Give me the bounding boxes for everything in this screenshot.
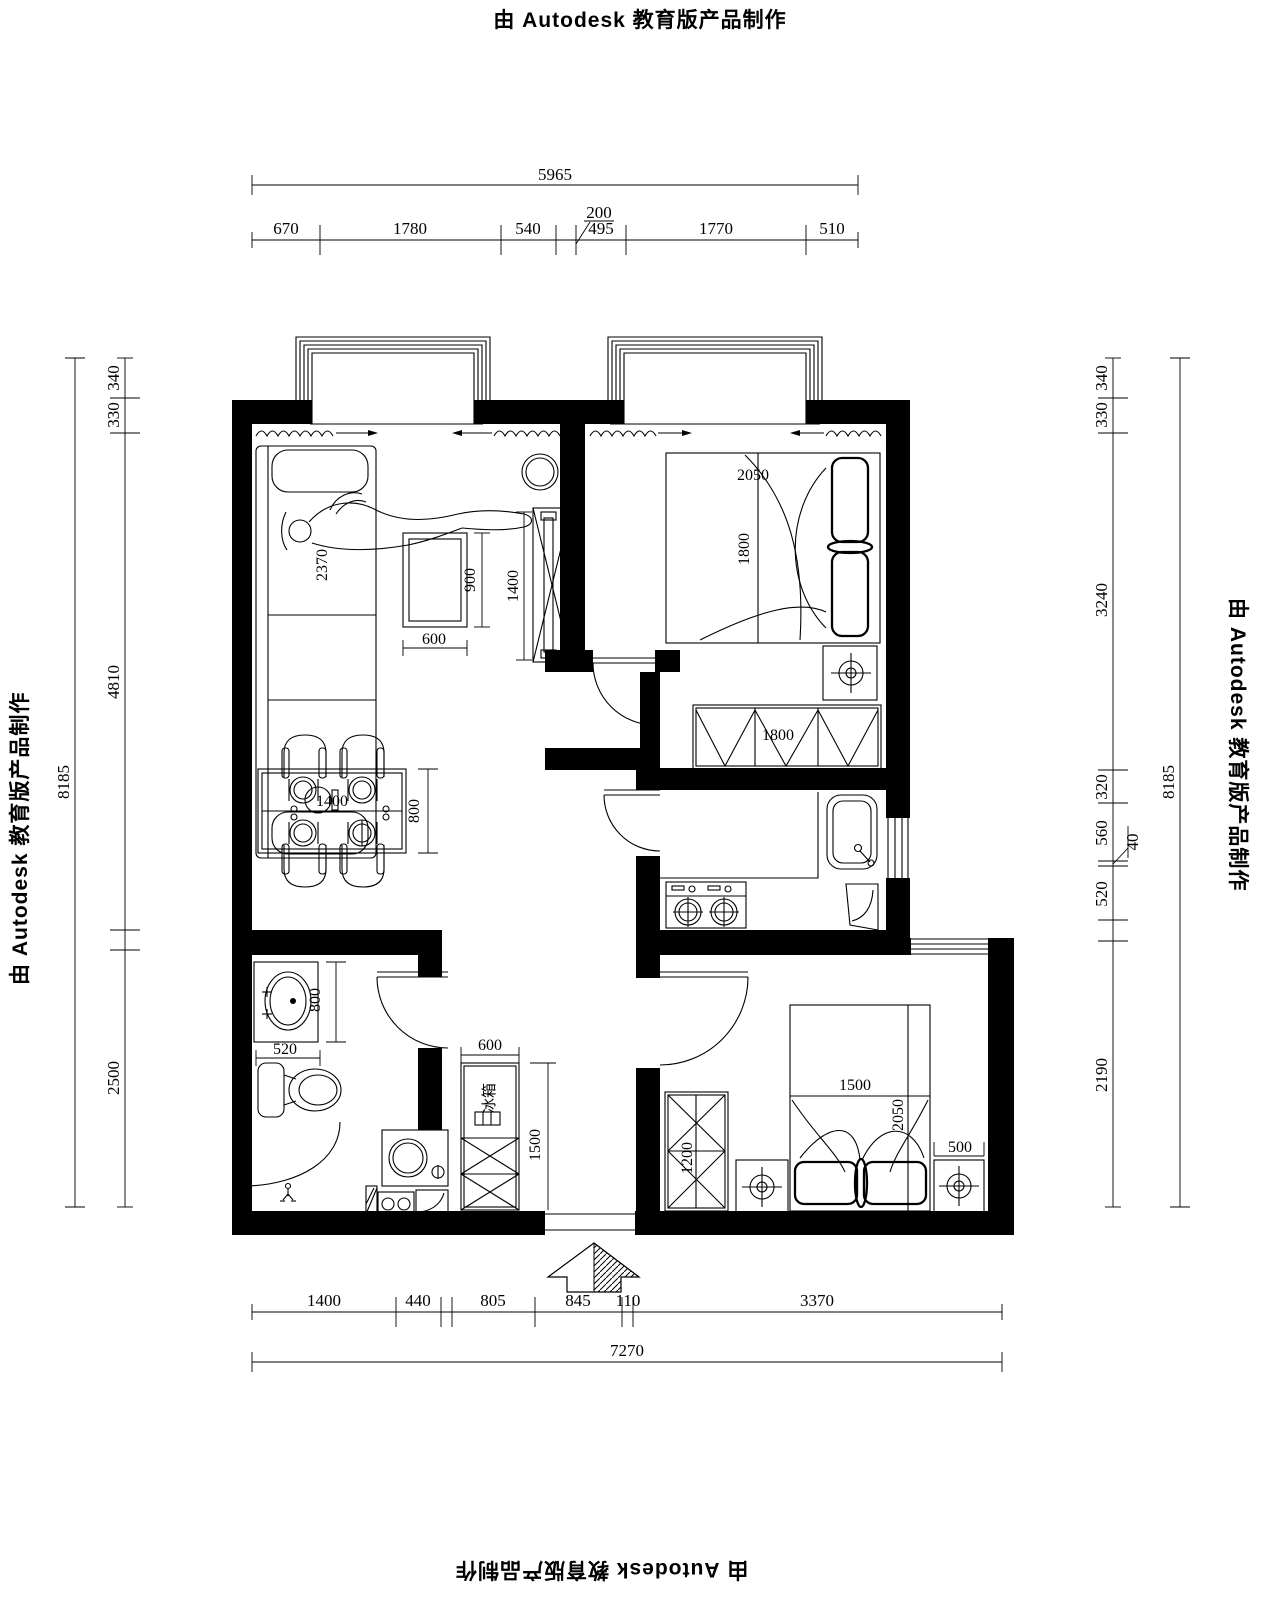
dim-fridge-width: 600 — [478, 1037, 502, 1054]
window-bedroom2-north — [911, 939, 988, 954]
curtain-living-room — [256, 430, 560, 436]
person-figure — [282, 493, 532, 550]
bed-bedroom2 — [790, 1005, 930, 1211]
dim-bed2-width: 1500 — [839, 1077, 871, 1094]
dim-basin-width: 520 — [273, 1041, 297, 1058]
dim-right-s1: 330 — [1092, 402, 1111, 428]
dim-left-s2: 4810 — [104, 665, 123, 699]
dim-bed1-length: 1800 — [736, 533, 753, 565]
dim-right-s3: 320 — [1092, 774, 1111, 800]
dim-bed1-width: 2050 — [737, 467, 769, 484]
dim-right-leader: 40 — [1123, 834, 1142, 851]
bed-bedroom1 — [666, 453, 880, 643]
coffee-table — [403, 533, 467, 627]
ceiling-lamp-icon — [522, 454, 558, 490]
dim-left-s1: 330 — [104, 402, 123, 428]
window-kitchen-east — [886, 818, 910, 878]
dim-bed2-length: 2050 — [890, 1099, 907, 1131]
dim-left-s3: 2500 — [104, 1061, 123, 1095]
dim-top-s1: 1780 — [393, 219, 427, 238]
dim-nightstand: 500 — [948, 1139, 972, 1156]
interior-dimensions: 2370 600 900 1400 1400 800 2050 1800 180… — [256, 467, 984, 1210]
toilet — [258, 1063, 341, 1117]
entry-arrow-icon — [548, 1243, 639, 1292]
dim-dining-length: 1400 — [316, 793, 348, 810]
door-bathroom — [377, 972, 448, 1048]
kitchen-counter — [660, 792, 818, 878]
washing-machine — [382, 1130, 448, 1186]
door-kitchen — [604, 790, 660, 851]
dim-top-s0: 670 — [273, 219, 299, 238]
fridge-label: 冰箱 — [481, 1083, 498, 1113]
cutting-board — [846, 884, 878, 930]
dim-chain-top: 5965 670 1780 540 495 1770 510 200 — [252, 165, 858, 255]
dim-right-total: 8185 — [1159, 765, 1178, 799]
dim-top-total: 5965 — [538, 165, 572, 184]
floor-plan-page: 由 Autodesk 教育版产品制作 由 Autodesk 教育版产品制作 由 … — [0, 0, 1280, 1600]
nightstand-bedroom1 — [823, 646, 877, 700]
dim-chain-bottom: 1400 440 805 845 110 3370 7270 — [252, 1291, 1002, 1372]
door-bedroom2 — [660, 972, 748, 1065]
dim-wardrobe2: 1200 — [679, 1142, 696, 1174]
dim-sofa: 2370 — [314, 549, 331, 581]
dim-right-s6: 2190 — [1092, 1058, 1111, 1092]
dim-right-s4: 560 — [1092, 820, 1111, 846]
fridge-cabinet: 冰箱 — [461, 1063, 519, 1210]
floor-drain-icon — [280, 1184, 296, 1202]
dim-fridge-height: 1500 — [527, 1129, 544, 1161]
stove — [666, 882, 746, 928]
dim-wardrobe1: 1800 — [762, 727, 794, 744]
dim-left-total: 8185 — [54, 765, 73, 799]
dim-top-s2: 540 — [515, 219, 541, 238]
dim-bottom-s2: 805 — [480, 1291, 506, 1310]
dim-right-s2: 3240 — [1092, 583, 1111, 617]
entry-threshold — [545, 1214, 635, 1230]
dim-coffee-table-depth: 900 — [462, 568, 479, 592]
dim-right-s5: 520 — [1092, 881, 1111, 907]
dim-basin-depth: 800 — [307, 988, 324, 1012]
dim-bottom-s1: 440 — [405, 1291, 431, 1310]
dim-bottom-s4: 110 — [616, 1291, 641, 1310]
bay-window-bedroom1 — [608, 337, 822, 424]
nightstand-left-bedroom2 — [736, 1160, 788, 1214]
dim-top-leader: 200 — [586, 203, 612, 222]
dim-top-s5: 510 — [819, 219, 845, 238]
wardrobe-bedroom2 — [665, 1092, 728, 1211]
dim-bottom-s5: 3370 — [800, 1291, 834, 1310]
floor-plan-drawing: 冰箱 — [0, 0, 1280, 1600]
dim-bottom-s0: 1400 — [307, 1291, 341, 1310]
dim-chain-left: 8185 340 330 4810 2500 — [54, 358, 140, 1207]
dim-bottom-s3: 845 — [565, 1291, 591, 1310]
dim-top-s4: 1770 — [699, 219, 733, 238]
kitchen-sink — [827, 795, 877, 869]
dim-left-s0: 340 — [104, 365, 123, 391]
nightstand-right-bedroom2 — [934, 1160, 984, 1212]
curtain-bedroom1 — [590, 430, 881, 436]
shower-curtain-line — [248, 1122, 340, 1186]
bay-window-living — [296, 337, 490, 424]
dim-tv-cabinet: 1400 — [505, 570, 522, 602]
dim-bottom-total: 7270 — [610, 1341, 644, 1360]
dim-coffee-table-width: 600 — [422, 631, 446, 648]
dim-right-s0: 340 — [1092, 365, 1111, 391]
dim-chain-right: 340 330 3240 320 560 520 2190 40 8185 — [1092, 358, 1190, 1207]
dim-dining-depth: 800 — [406, 799, 423, 823]
